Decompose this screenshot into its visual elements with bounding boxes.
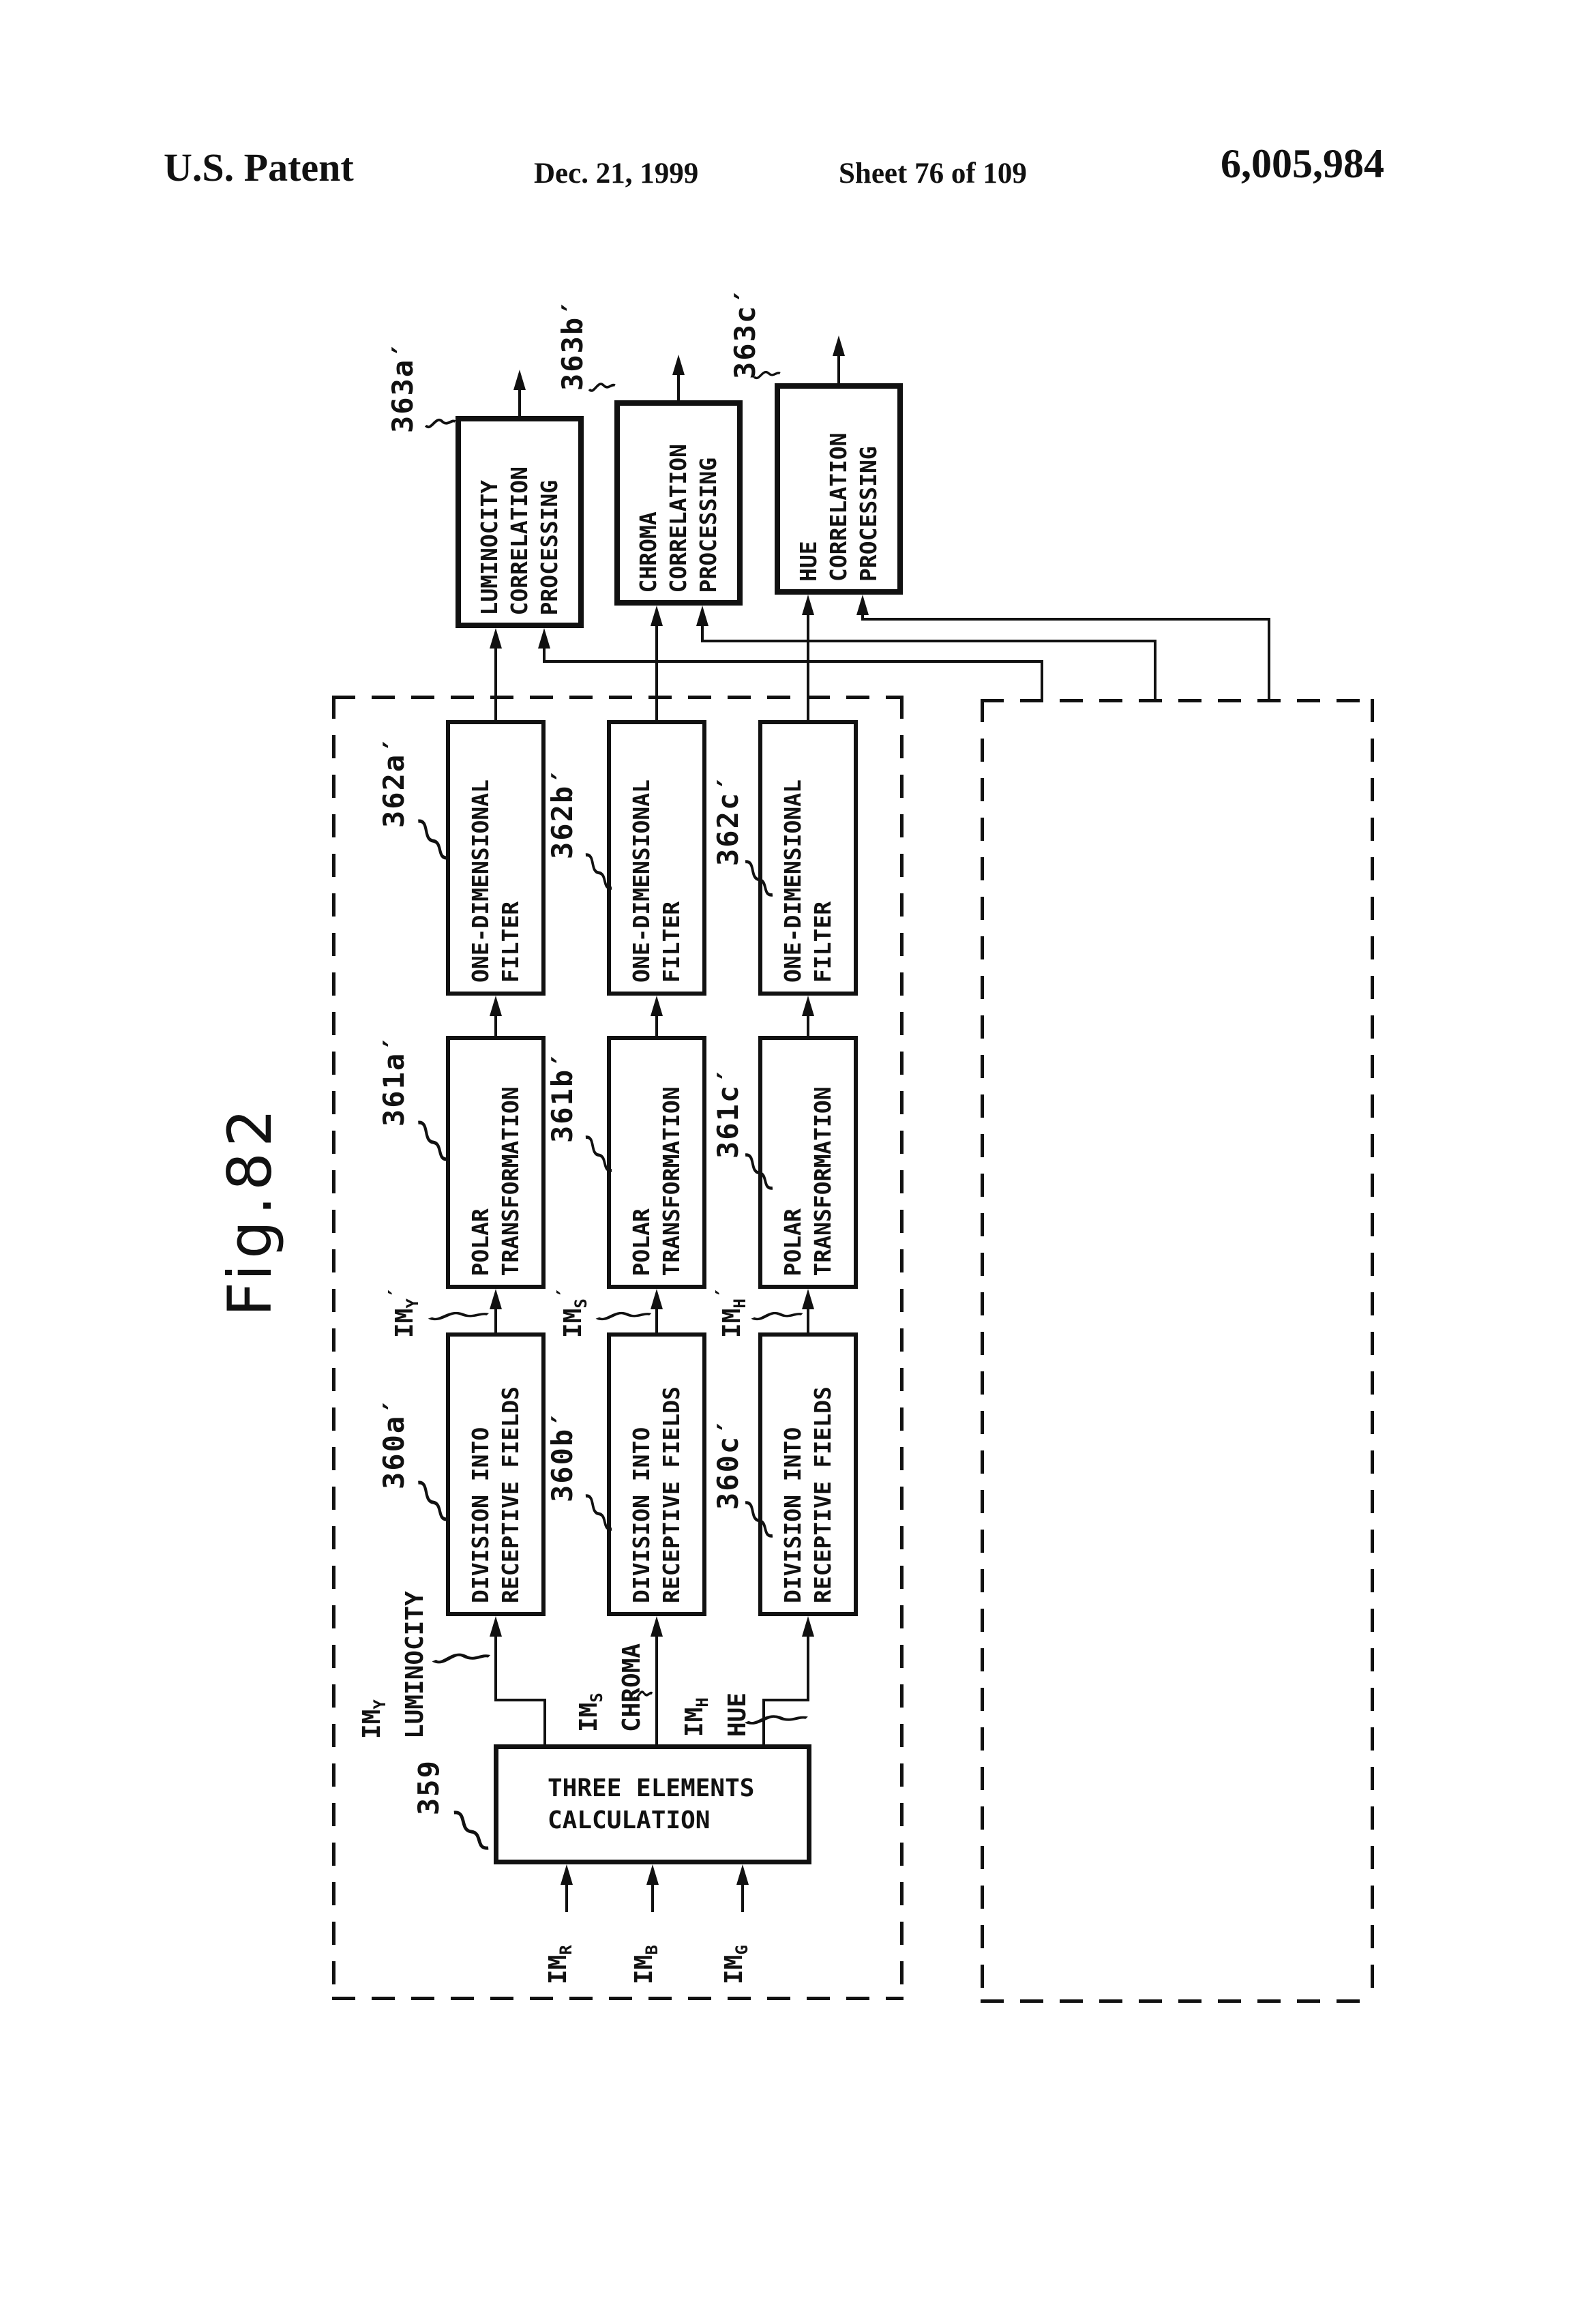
block-chroma-correlation-processing: CHROMA CORRELATION PROCESSING bbox=[614, 400, 743, 606]
signal-label-im-s-prime: IMS′ bbox=[548, 1262, 593, 1338]
leader-squiggle-im-h bbox=[743, 1705, 810, 1735]
block-label-line: FILTER bbox=[496, 724, 526, 983]
leader-squiggle-363c bbox=[753, 361, 781, 389]
leader-squiggle-359 bbox=[451, 1810, 491, 1851]
line-calc-to-division-a-rise bbox=[494, 1637, 497, 1701]
block-label-line: PROCESSING bbox=[854, 387, 884, 582]
ref-label-361a: 361a′ bbox=[377, 1042, 421, 1127]
signal-label-im-y-prime: IMY′ bbox=[379, 1262, 424, 1338]
line-division-to-polar-a bbox=[494, 1309, 497, 1332]
arrowhead-filter-to-corr-a bbox=[490, 628, 502, 649]
block-label-line: ONE-DIMENSIONAL bbox=[466, 724, 496, 983]
dashed-box-right-bottom-edge bbox=[981, 1999, 1374, 2003]
dashed-box-right-left-edge bbox=[981, 699, 984, 2002]
arrowhead-rightbox-to-corr-a bbox=[538, 628, 550, 649]
leader-squiggle-360b bbox=[584, 1493, 614, 1532]
block-hue-correlation-processing: HUE CORRELATION PROCESSING bbox=[775, 383, 903, 595]
signal-symbol: IMY′ bbox=[379, 1262, 430, 1338]
block-one-dimensional-filter-b: ONE-DIMENSIONAL FILTER bbox=[607, 720, 706, 996]
block-label-line: TRANSFORMATION bbox=[496, 1039, 526, 1276]
patent-header-sheet: Sheet 76 of 109 bbox=[839, 157, 1027, 190]
signal-symbol: IMR bbox=[541, 1909, 584, 1984]
patent-header-date: Dec. 21, 1999 bbox=[534, 157, 698, 190]
line-calc-to-division-a-run bbox=[494, 1699, 546, 1701]
arrowhead-filter-to-corr-c bbox=[802, 595, 814, 615]
signal-label-im-b: IMB bbox=[627, 1909, 670, 1984]
ref-label-360b: 360b′ bbox=[546, 1415, 589, 1502]
arrowhead-input-im-g bbox=[736, 1864, 749, 1885]
block-division-receptive-fields-a: DIVISION INTO RECEPTIVE FIELDS bbox=[446, 1332, 546, 1616]
arrowhead-rightbox-to-corr-c bbox=[856, 595, 869, 615]
patent-header-title: U.S. Patent bbox=[164, 145, 354, 190]
block-label-line: POLAR bbox=[466, 1039, 496, 1276]
patent-sheet-page: U.S. Patent Dec. 21, 1999 Sheet 76 of 10… bbox=[0, 0, 1582, 2324]
leader-squiggle-362b bbox=[584, 852, 614, 891]
leader-squiggle-361a bbox=[416, 1120, 450, 1162]
line-division-to-polar-b bbox=[655, 1309, 658, 1332]
ref-label-362b: 362b′ bbox=[546, 771, 589, 859]
block-label-line: CHROMA bbox=[633, 404, 663, 593]
arrowhead-filter-to-corr-b bbox=[651, 606, 663, 626]
line-polar-to-filter-c bbox=[807, 1016, 809, 1036]
signal-label-im-r: IMR bbox=[541, 1909, 584, 1984]
block-luminocity-correlation-processing: LUMINOCITY CORRELATION PROCESSING bbox=[456, 416, 584, 628]
arrowhead-calc-to-division-b bbox=[651, 1616, 663, 1637]
leader-squiggle-im-h-prime bbox=[750, 1302, 805, 1330]
line-rightbox-to-corr-c-run bbox=[861, 618, 1270, 621]
block-label-line: PROCESSING bbox=[535, 419, 565, 615]
line-calc-to-division-c-run bbox=[762, 1699, 809, 1701]
leader-squiggle-361b bbox=[584, 1135, 614, 1173]
signal-label-im-h-prime: IMH′ bbox=[706, 1262, 751, 1338]
line-filter-to-corr-b bbox=[655, 626, 658, 720]
leader-squiggle-im-y bbox=[431, 1642, 492, 1675]
line-rightbox-to-corr-a-stub bbox=[1041, 660, 1043, 699]
signal-symbol: IMB bbox=[627, 1909, 670, 1984]
leader-squiggle-361c bbox=[743, 1152, 775, 1191]
signal-symbol: IMS′ bbox=[548, 1262, 599, 1338]
line-rightbox-to-corr-b-stub bbox=[1154, 640, 1156, 699]
ref-label-359: 359 bbox=[412, 1750, 457, 1815]
leader-squiggle-362c bbox=[743, 859, 775, 897]
line-calc-to-division-a-drop bbox=[543, 1699, 546, 1744]
block-label-line: TRANSFORMATION bbox=[808, 1039, 838, 1276]
block-label-line: FILTER bbox=[808, 724, 838, 983]
block-division-receptive-fields-b: DIVISION INTO RECEPTIVE FIELDS bbox=[607, 1332, 706, 1616]
line-polar-to-filter-b bbox=[655, 1016, 658, 1036]
block-label-line: POLAR bbox=[778, 1039, 808, 1276]
line-rightbox-to-corr-a-run bbox=[543, 660, 1043, 663]
arrowhead-polar-to-filter-a bbox=[490, 996, 502, 1016]
arrowhead-output-hue bbox=[833, 336, 845, 356]
leader-squiggle-362a bbox=[416, 818, 450, 861]
signal-symbol: IMH bbox=[677, 1674, 720, 1737]
dashed-box-right-top-edge bbox=[981, 699, 1374, 702]
line-input-im-b bbox=[651, 1885, 654, 1912]
block-label-line: RECEPTIVE FIELDS bbox=[496, 1336, 526, 1603]
dashed-box-left-bottom-edge bbox=[332, 1997, 904, 2000]
block-division-receptive-fields-c: DIVISION INTO RECEPTIVE FIELDS bbox=[758, 1332, 858, 1616]
block-one-dimensional-filter-c: ONE-DIMENSIONAL FILTER bbox=[758, 720, 858, 996]
block-label-line: LUMINOCITY bbox=[475, 419, 505, 615]
block-label-line: FILTER bbox=[657, 724, 687, 983]
dashed-box-left-right-edge bbox=[900, 696, 904, 1999]
dashed-box-right-right-edge bbox=[1371, 699, 1374, 2002]
block-one-dimensional-filter-a: ONE-DIMENSIONAL FILTER bbox=[446, 720, 546, 996]
block-label-line: HUE bbox=[794, 387, 824, 582]
arrowhead-polar-to-filter-c bbox=[802, 996, 814, 1016]
arrowhead-division-to-polar-a bbox=[490, 1289, 502, 1309]
line-polar-to-filter-a bbox=[494, 1016, 497, 1036]
block-label-line: PROCESSING bbox=[693, 404, 723, 593]
dashed-box-left-top-edge bbox=[332, 696, 904, 699]
signal-label-im-g: IMG bbox=[717, 1909, 760, 1984]
dashed-box-left-left-edge bbox=[332, 696, 335, 1999]
arrowhead-calc-to-division-c bbox=[802, 1616, 814, 1637]
block-label-line: POLAR bbox=[627, 1039, 657, 1276]
block-label-line: CORRELATION bbox=[505, 419, 535, 615]
block-label-line: DIVISION INTO bbox=[778, 1336, 808, 1603]
ref-label-361b: 361b′ bbox=[546, 1058, 589, 1143]
ref-label-361c: 361c′ bbox=[711, 1074, 755, 1159]
arrowhead-output-chroma bbox=[672, 355, 685, 375]
ref-label-362a: 362a′ bbox=[377, 736, 421, 828]
ref-label-360c: 360c′ bbox=[711, 1422, 755, 1510]
block-polar-transformation-a: POLAR TRANSFORMATION bbox=[446, 1036, 546, 1289]
line-output-luminocity bbox=[518, 390, 521, 416]
block-label-line: ONE-DIMENSIONAL bbox=[627, 724, 657, 983]
block-polar-transformation-b: POLAR TRANSFORMATION bbox=[607, 1036, 706, 1289]
block-label-line: DIVISION INTO bbox=[466, 1336, 496, 1603]
block-label-line: RECEPTIVE FIELDS bbox=[657, 1336, 687, 1603]
block-label-line: DIVISION INTO bbox=[627, 1336, 657, 1603]
line-calc-to-division-c-rise bbox=[807, 1637, 809, 1701]
leader-squiggle-im-s bbox=[633, 1680, 653, 1710]
leader-squiggle-363b bbox=[588, 372, 616, 402]
leader-squiggle-im-y-prime bbox=[427, 1302, 491, 1330]
leader-squiggle-360c bbox=[743, 1500, 775, 1538]
block-three-elements-calculation: THREE ELEMENTS CALCULATION bbox=[494, 1744, 811, 1864]
leader-squiggle-im-s-prime bbox=[595, 1302, 653, 1330]
signal-symbol: IMG bbox=[717, 1909, 760, 1984]
ref-label-362c: 362c′ bbox=[711, 777, 755, 866]
signal-symbol: IMS bbox=[571, 1630, 614, 1732]
line-rightbox-to-corr-c-stub bbox=[1268, 618, 1270, 699]
arrowhead-input-im-r bbox=[561, 1864, 573, 1885]
line-filter-to-corr-c bbox=[807, 615, 809, 720]
block-label-line: CORRELATION bbox=[663, 404, 693, 593]
figure-label: Fig.82 bbox=[215, 1060, 283, 1316]
arrowhead-output-luminocity bbox=[513, 370, 526, 390]
line-filter-to-corr-a bbox=[494, 649, 497, 720]
line-rightbox-to-corr-b-run bbox=[701, 640, 1156, 642]
leader-squiggle-363a bbox=[424, 408, 457, 439]
line-input-im-r bbox=[565, 1885, 568, 1912]
arrowhead-rightbox-to-corr-b bbox=[696, 606, 708, 626]
arrowhead-calc-to-division-a bbox=[490, 1616, 502, 1637]
leader-squiggle-360a bbox=[416, 1480, 450, 1522]
block-label-line: CALCULATION bbox=[548, 1804, 754, 1836]
line-calc-to-division-b bbox=[655, 1637, 658, 1744]
block-label-line: CORRELATION bbox=[824, 387, 854, 582]
patent-header-number: 6,005,984 bbox=[1221, 140, 1384, 188]
signal-symbol: IMY bbox=[355, 1459, 398, 1739]
block-label-line: TRANSFORMATION bbox=[657, 1039, 687, 1276]
block-label-line: THREE ELEMENTS bbox=[548, 1772, 754, 1804]
block-label-line: RECEPTIVE FIELDS bbox=[808, 1336, 838, 1603]
arrowhead-polar-to-filter-b bbox=[651, 996, 663, 1016]
line-division-to-polar-c bbox=[807, 1309, 809, 1332]
block-label-line: ONE-DIMENSIONAL bbox=[778, 724, 808, 983]
line-input-im-g bbox=[741, 1885, 744, 1912]
arrowhead-input-im-b bbox=[646, 1864, 659, 1885]
signal-label-im-h-hue: IMH HUE bbox=[677, 1674, 753, 1737]
line-output-hue bbox=[837, 356, 840, 383]
line-output-chroma bbox=[677, 375, 680, 400]
